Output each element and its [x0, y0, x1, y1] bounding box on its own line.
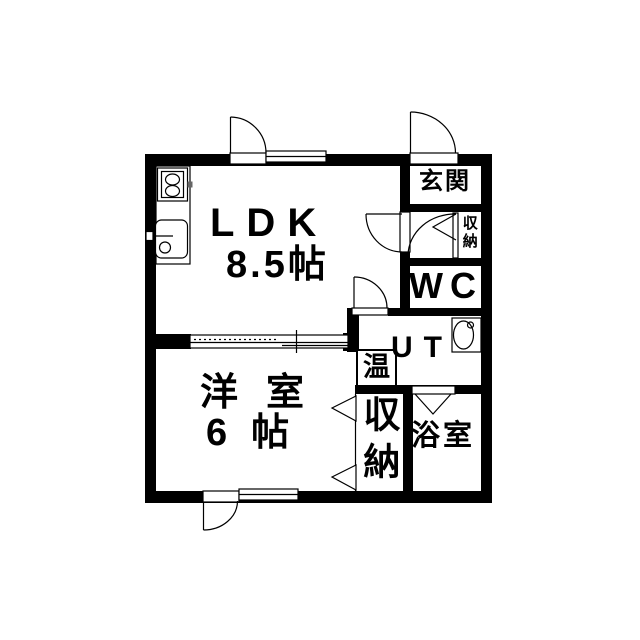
- window-north: [266, 151, 326, 162]
- door-sill-bedroom-south: [203, 491, 239, 502]
- sliding-door-partition: [190, 330, 348, 353]
- room-label-bathroom: 浴室: [411, 421, 475, 451]
- door-entrance-icon: [411, 112, 456, 153]
- room-label-water-heater: 温: [357, 353, 396, 381]
- hall-closet-front: [453, 213, 458, 258]
- floor-plan: LDK 8.5帖 洋室 6帖 玄関 WC UT 温 収納 収納 浴室: [0, 0, 640, 640]
- room-label-hall-closet: 収納: [461, 215, 477, 251]
- door-sill-utility: [352, 308, 388, 315]
- door-hall-closet-icon: [408, 214, 456, 255]
- room-label-entrance: 玄関: [419, 169, 471, 194]
- room-label-utility: UT: [391, 332, 453, 364]
- door-bath-folding-icon: [415, 394, 451, 414]
- door-sill-hall: [400, 212, 410, 252]
- room-label-room-closet: 収納: [358, 395, 397, 489]
- door-sill-entrance: [410, 153, 458, 164]
- door-opening-bath: [412, 386, 455, 394]
- washbasin-icon: [452, 318, 481, 352]
- door-ldk-north-icon: [231, 117, 267, 153]
- room-area-western: 6帖: [206, 414, 313, 454]
- plan-linework: [0, 0, 640, 640]
- door-sill-ldk-north: [230, 153, 266, 164]
- door-bedroom-south-icon: [204, 501, 238, 530]
- room-label-ldk: LDK: [210, 202, 328, 244]
- room-label-toilet: WC: [409, 267, 483, 305]
- stove-icon: [158, 168, 193, 201]
- room-label-western: 洋室: [200, 374, 332, 414]
- door-hall-icon: [366, 214, 402, 252]
- window-south: [239, 489, 298, 500]
- sink-icon: [146, 220, 188, 258]
- bedroom-closet-doors: [332, 394, 356, 491]
- room-area-ldk: 8.5帖: [226, 246, 329, 286]
- door-utility-icon: [354, 277, 387, 308]
